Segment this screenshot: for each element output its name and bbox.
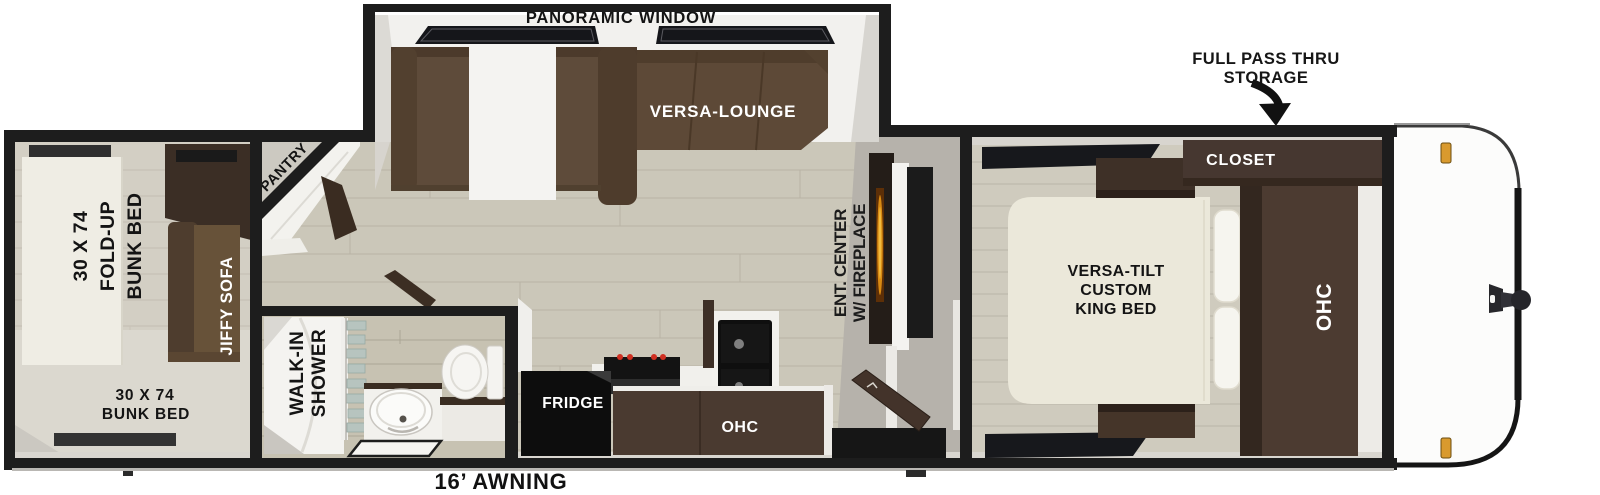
svg-text:VERSA-TILT: VERSA-TILT — [1067, 263, 1164, 280]
svg-text:JIFFY SOFA: JIFFY SOFA — [218, 256, 236, 355]
svg-text:STORAGE: STORAGE — [1224, 69, 1309, 87]
svg-text:OHC: OHC — [721, 419, 758, 436]
svg-text:OHC: OHC — [1313, 283, 1336, 331]
svg-text:ENT. CENTERW/ FIREPLACE: ENT. CENTERW/ FIREPLACE — [831, 204, 869, 322]
svg-text:KING BED: KING BED — [1075, 301, 1156, 318]
svg-text:CLOSET: CLOSET — [1206, 152, 1276, 169]
svg-text:WALK-INSHOWER: WALK-INSHOWER — [287, 329, 330, 418]
svg-text:FULL PASS THRU: FULL PASS THRU — [1192, 50, 1340, 68]
svg-text:FRIDGE: FRIDGE — [542, 395, 604, 412]
svg-text:30 X 74: 30 X 74 — [115, 387, 174, 404]
svg-text:BUNK BED: BUNK BED — [102, 406, 190, 423]
svg-text:16’ AWNING: 16’ AWNING — [434, 469, 567, 494]
svg-text:CUSTOM: CUSTOM — [1080, 282, 1151, 299]
svg-text:VERSA-LOUNGE: VERSA-LOUNGE — [650, 102, 797, 121]
